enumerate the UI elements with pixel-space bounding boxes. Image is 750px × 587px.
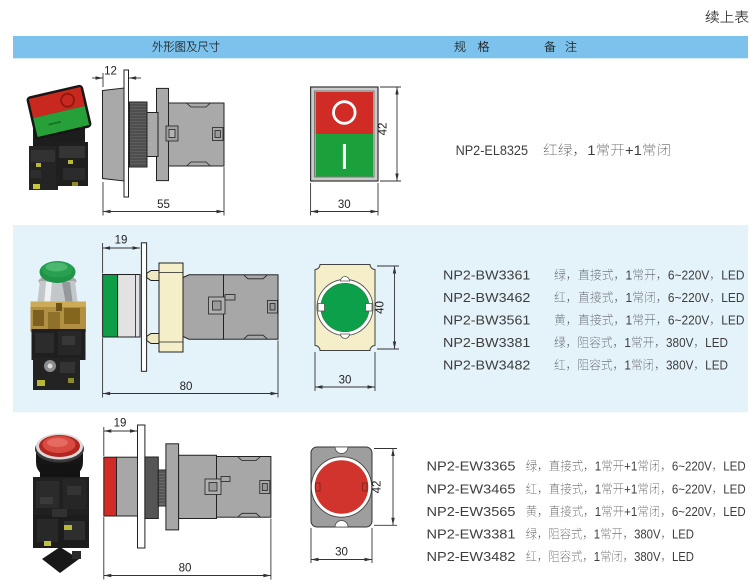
svg-text:19: 19 [114,418,127,430]
svg-text:1: 1 [595,482,602,497]
svg-text:NP2-EW3565: NP2-EW3565 [427,505,516,519]
svg-text:6~220V: 6~220V [672,482,713,497]
svg-text:40: 40 [375,301,387,314]
svg-text:1: 1 [624,335,631,350]
svg-text:1: 1 [626,268,633,283]
svg-text:55: 55 [157,199,170,211]
svg-text:NP2-BW3482: NP2-BW3482 [443,358,530,372]
svg-text:LED: LED [721,291,744,306]
svg-text:42: 42 [372,481,384,494]
svg-text:30: 30 [339,375,352,387]
svg-text:1: 1 [626,291,633,306]
svg-text:1: 1 [594,527,601,542]
svg-text:LED: LED [705,358,728,373]
svg-text:6~220V: 6~220V [672,459,713,474]
svg-text:30: 30 [335,547,348,559]
svg-text:LED: LED [672,549,694,564]
svg-text:1: 1 [595,459,602,474]
svg-text:6~220V: 6~220V [668,313,710,328]
svg-text:NP2-BW3381: NP2-BW3381 [443,336,530,350]
svg-text:NP2-BW3462: NP2-BW3462 [443,291,530,305]
svg-text:LED: LED [721,268,744,283]
svg-text:NP2-EW3465: NP2-EW3465 [427,482,516,496]
svg-text:1: 1 [624,358,631,373]
svg-text:1: 1 [595,504,602,519]
svg-text:NP2-BW3361: NP2-BW3361 [443,268,530,282]
svg-text:1: 1 [587,143,595,159]
svg-text:LED: LED [672,527,694,542]
svg-text:+1: +1 [624,482,637,497]
svg-text:6~220V: 6~220V [668,268,710,283]
svg-text:LED: LED [723,504,745,519]
svg-text:380V: 380V [634,549,661,564]
svg-text:12: 12 [104,66,117,78]
svg-text:+1: +1 [624,504,637,519]
svg-text:+1: +1 [624,459,637,474]
svg-text:30: 30 [338,199,351,211]
svg-text:6~220V: 6~220V [672,504,713,519]
svg-text:1: 1 [594,549,601,564]
svg-text:LED: LED [705,335,728,350]
svg-text:LED: LED [721,313,744,328]
svg-text:NP2-BW3561: NP2-BW3561 [443,313,530,327]
svg-text:+1: +1 [625,143,642,159]
svg-text:80: 80 [180,381,193,393]
svg-text:80: 80 [179,563,192,575]
svg-text:380V: 380V [634,527,661,542]
svg-text:42: 42 [378,123,390,136]
svg-text:NP2-EW3381: NP2-EW3381 [427,527,516,541]
svg-text:NP2-EW3482: NP2-EW3482 [427,550,516,564]
svg-text:NP2-EW3365: NP2-EW3365 [427,459,516,473]
svg-text:LED: LED [723,459,745,474]
svg-text:1: 1 [626,313,633,328]
svg-text:380V: 380V [666,335,694,350]
svg-text:NP2-EL8325: NP2-EL8325 [456,142,528,158]
svg-text:380V: 380V [666,358,694,373]
svg-text:19: 19 [115,235,128,247]
svg-text:LED: LED [723,482,745,497]
svg-text:6~220V: 6~220V [668,291,710,306]
